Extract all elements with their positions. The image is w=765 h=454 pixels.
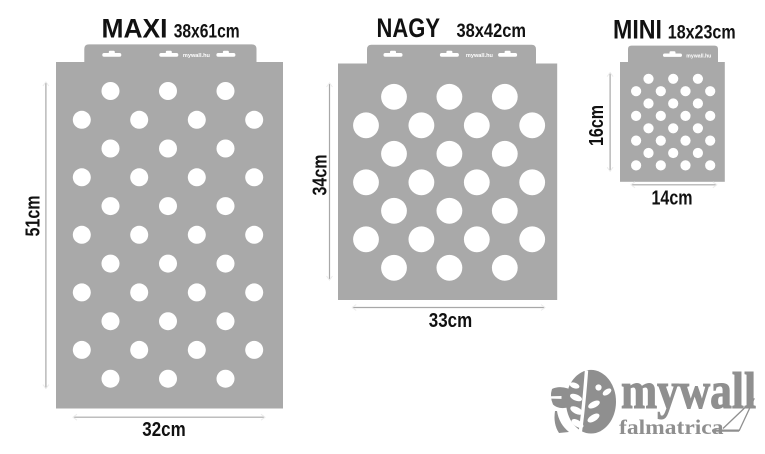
svg-text:51cm: 51cm [23,196,45,237]
svg-text:MAXI: MAXI [102,13,168,43]
svg-text:34cm: 34cm [310,155,332,196]
svg-text:mywall.hu: mywall.hu [686,54,711,60]
svg-text:mywall.hu: mywall.hu [466,53,494,59]
svg-text:33cm: 33cm [429,310,472,332]
svg-text:mywall.hu: mywall.hu [183,53,211,59]
svg-text:16cm: 16cm [586,105,608,146]
svg-text:falmatrica: falmatrica [619,415,724,439]
svg-text:18x23cm: 18x23cm [668,21,736,43]
svg-text:14cm: 14cm [652,187,693,209]
svg-text:32cm: 32cm [142,419,185,441]
svg-text:38x42cm: 38x42cm [457,20,527,42]
svg-text:MINI: MINI [613,14,662,44]
svg-text:NAGY: NAGY [377,13,441,43]
svg-text:38x61cm: 38x61cm [174,20,240,42]
svg-text:mywall: mywall [621,363,756,420]
